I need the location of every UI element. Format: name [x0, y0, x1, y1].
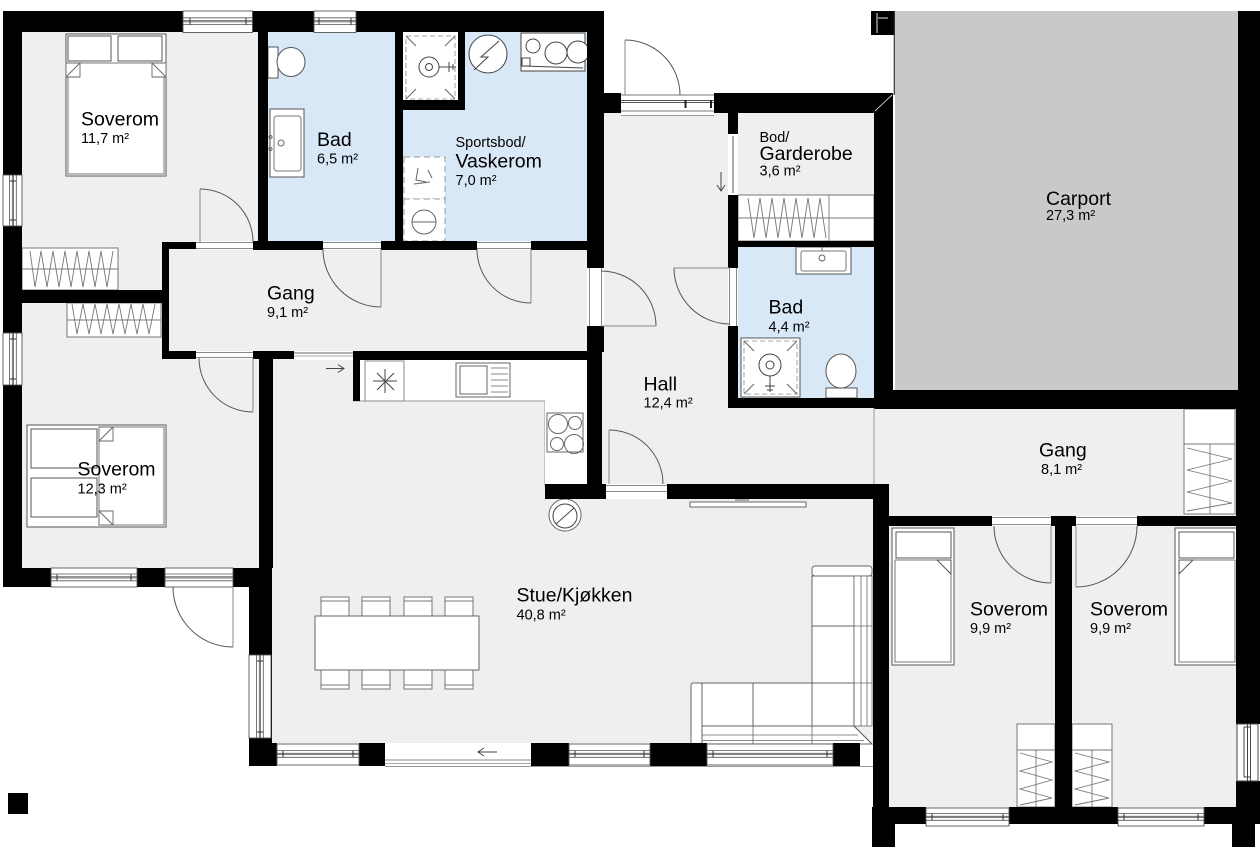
svg-text:8,1 m²: 8,1 m² [1041, 462, 1082, 478]
svg-text:Hall: Hall [644, 374, 678, 396]
svg-text:Bad: Bad [317, 129, 352, 151]
svg-text:Soverom: Soverom [81, 109, 159, 131]
svg-text:Soverom: Soverom [78, 459, 156, 481]
svg-text:12,3 m²: 12,3 m² [78, 482, 127, 498]
svg-text:Soverom: Soverom [1090, 599, 1168, 621]
svg-text:12,4 m²: 12,4 m² [644, 396, 693, 412]
svg-text:Garderobe: Garderobe [760, 143, 853, 165]
svg-text:9,1 m²: 9,1 m² [267, 305, 308, 321]
svg-text:Carport: Carport [1046, 188, 1112, 210]
svg-text:4,4 m²: 4,4 m² [769, 320, 810, 336]
svg-text:9,9 m²: 9,9 m² [970, 621, 1011, 637]
svg-text:27,3 m²: 27,3 m² [1046, 208, 1095, 224]
svg-text:9,9 m²: 9,9 m² [1090, 621, 1131, 637]
svg-text:Sportsbod/: Sportsbod/ [456, 135, 527, 151]
svg-text:40,8 m²: 40,8 m² [517, 608, 566, 624]
svg-text:Gang: Gang [267, 283, 315, 305]
svg-text:11,7 m²: 11,7 m² [81, 131, 129, 147]
svg-text:Vaskerom: Vaskerom [456, 151, 542, 173]
svg-text:Gang: Gang [1039, 440, 1087, 462]
svg-text:Soverom: Soverom [970, 599, 1048, 621]
svg-text:Bad: Bad [769, 297, 804, 319]
svg-text:6,5 m²: 6,5 m² [317, 152, 358, 168]
svg-text:Stue/Kjøkken: Stue/Kjøkken [517, 585, 633, 607]
svg-text:3,6 m²: 3,6 m² [760, 164, 801, 180]
svg-text:7,0 m²: 7,0 m² [456, 173, 497, 189]
